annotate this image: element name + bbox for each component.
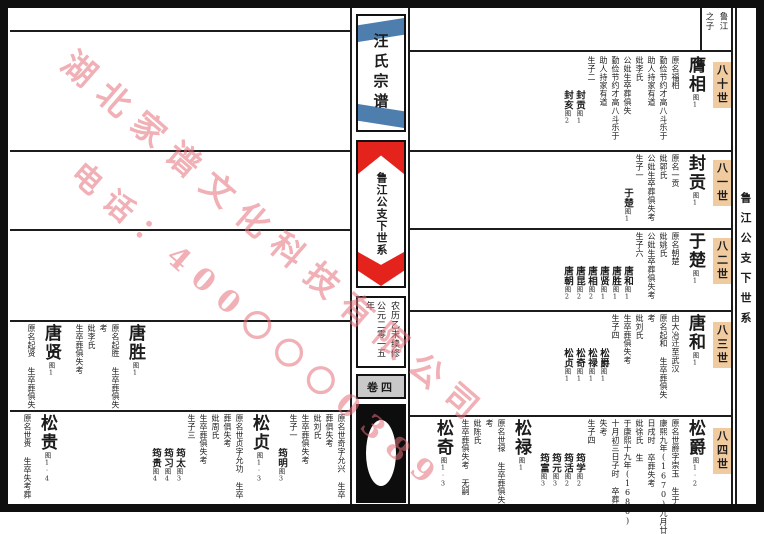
chart-ref: 图2	[563, 473, 571, 488]
red-chevron-icon	[358, 252, 404, 286]
generation-label: 八二世	[712, 238, 731, 288]
left-page-edge-line	[350, 8, 352, 504]
chart-ref: 图1	[623, 286, 631, 301]
spine-black-block	[356, 404, 406, 503]
chart-ref: 图1	[611, 286, 619, 301]
detail-column: 妣刘氏	[633, 314, 645, 339]
chart-ref: 图1	[623, 208, 631, 223]
detail-column: 葬俱失考	[221, 414, 233, 448]
detail-column: 原名世奇字允兴 生卒	[335, 414, 347, 499]
chart-ref: 图1	[47, 362, 55, 377]
chart-ref: 图2	[575, 286, 583, 301]
child-name: 筠贵图4	[149, 414, 161, 482]
detail-column: 考	[483, 419, 495, 427]
generation-row-2: 于楚图1原名朝楚妣姚氏公妣生卒葬俱失考生子六唐和图1唐胜图1唐贤图1唐相图2唐昆…	[410, 232, 709, 307]
child-name: 唐朝图2	[561, 232, 573, 300]
detail-column: 考	[645, 314, 657, 322]
detail-column: 生卒葬俱失考	[299, 414, 311, 464]
chart-ref: 图1	[691, 270, 699, 285]
chart-ref: 图1	[599, 286, 607, 301]
ancestor-header-right: 鲁江	[717, 12, 729, 48]
detail-column: 公妣生卒葬俱失考	[645, 232, 657, 299]
person-entry: 唐贤图1原名起贤 生卒葬俱失	[25, 324, 63, 409]
generation-row-3: 唐和图1由大冶迁至武汉原名起和 生卒葬俱失考妣刘氏生卒葬俱失考生子四松爵图1松禄…	[410, 314, 709, 412]
child-name: 松贞图1	[561, 314, 573, 382]
child-name: 筠学图2	[573, 419, 585, 487]
detail-column: 原名福相	[669, 56, 681, 90]
left-row-0: 唐胜图1原名起胜 生卒葬俱失考妣李氏生卒葬俱失考唐贤图1原名起贤 生卒葬俱失	[12, 324, 349, 407]
spine-oval-icon	[366, 420, 396, 486]
child-name: 筠元图3	[549, 419, 561, 487]
chart-ref: 图1	[599, 368, 607, 383]
chart-ref: 图1	[575, 110, 583, 125]
child-name: 唐胜图1	[609, 232, 621, 300]
chart-ref: 图1·2	[691, 457, 699, 488]
person-entry: 松奇图1·3	[429, 419, 455, 488]
person-name: 松贞图1·3	[247, 414, 271, 483]
detail-column: 原名一贡	[669, 154, 681, 188]
person-name: 松爵图1·2	[683, 419, 707, 488]
person-name: 膺相图1	[683, 56, 707, 109]
detail-column: 妣李氏	[85, 324, 97, 349]
detail-column: 生卒葬俱失考	[621, 314, 633, 364]
detail-column: 生子六	[633, 232, 645, 257]
generation-row-0: 膺相图1原名福相勤俭节约才高八斗乐于助人持家有道妣李氏公妣生卒葬俱失勤俭节约才高…	[410, 56, 709, 148]
branch-title: 鲁江公支下世系	[373, 172, 389, 256]
generation-label-text: 八一世	[713, 160, 731, 206]
chart-ref: 图1	[563, 368, 571, 383]
generation-label-text: 八三世	[713, 322, 731, 368]
chart-ref: 图1	[691, 192, 699, 207]
child-name: 唐和图1	[621, 232, 633, 300]
detail-column: 公妣生卒葬俱失考	[645, 154, 657, 221]
detail-column: 考	[97, 324, 109, 332]
child-name: 筠富图3	[537, 419, 549, 487]
volume-label: 卷四	[356, 374, 406, 399]
detail-column: 康熙九年(1670)九月廿	[657, 419, 669, 534]
person-name: 于楚图1	[683, 232, 707, 285]
chart-ref: 图2	[563, 286, 571, 301]
row-spacer	[147, 324, 347, 328]
chart-ref: 图3	[175, 468, 183, 483]
detail-column: 公妣生卒葬俱失	[621, 56, 633, 115]
detail-column: 生子一	[633, 154, 645, 179]
person-entry: 唐胜图1原名起胜 生卒葬俱失考妣李氏生卒葬俱失考	[73, 324, 147, 409]
detail-column: 原名起和 生卒葬俱失	[657, 314, 669, 399]
detail-column: 于康熙十九年(1680)	[621, 419, 633, 526]
chart-ref: 图1·3	[439, 457, 447, 488]
child-name: 筠明图3	[275, 414, 287, 482]
child-name: 于楚图1	[621, 154, 633, 222]
child-name: 封贡图1	[573, 56, 585, 124]
detail-column: 生卒葬俱失考 无嗣	[459, 419, 471, 496]
right-page-line	[408, 50, 733, 52]
chart-ref: 图3	[551, 473, 559, 488]
detail-column: 失考	[597, 419, 609, 436]
child-name: 唐贤图1	[597, 232, 609, 300]
generation-label: 八一世	[712, 160, 731, 210]
detail-column: 勤俭节约才高八斗乐于	[657, 56, 669, 140]
child-name: 筠太图3	[173, 414, 185, 482]
chart-ref: 图2	[587, 286, 595, 301]
person-name: 松奇图1·3	[431, 419, 455, 488]
generation-label-text: 八十世	[713, 62, 731, 108]
detail-column: 生子三	[185, 414, 197, 439]
chart-ref: 图1	[691, 94, 699, 109]
detail-column: 原名起贤 生卒葬俱失	[25, 324, 37, 409]
generation-label-text: 八二世	[713, 238, 731, 284]
detail-column: 生子四	[585, 419, 597, 444]
generation-label: 八十世	[712, 62, 731, 112]
child-name: 松爵图1	[597, 314, 609, 382]
red-ribbon-icon	[358, 142, 404, 174]
child-name: 唐相图2	[585, 232, 597, 300]
row-spacer	[59, 414, 145, 418]
person-entry: 松爵图1·2原名世爵字崇玉 生于康熙九年(1670)九月廿日戌时 卒葬失考妣徐氏…	[537, 419, 707, 534]
detail-column: 原名起胜 生卒葬俱失	[109, 324, 121, 409]
left-row-1: 原名世奇字允兴 生卒葬俱失考妣刘氏生卒葬俱失考生子一筠明图3松贞图1·3原名世贞…	[12, 414, 349, 500]
spine-title-block: 汪氏宗谱	[356, 14, 406, 132]
chart-ref: 图1	[575, 368, 583, 383]
person-name: 唐和图1	[683, 314, 707, 367]
detail-column: 妣周氏	[209, 414, 221, 439]
right-margin-title: 鲁江公支下世系	[737, 192, 753, 332]
detail-column: 勤俭节约才高八斗乐于	[609, 56, 621, 140]
chart-ref: 图3	[539, 473, 547, 488]
detail-column: 生卒葬俱失考	[197, 414, 209, 464]
edition-gregorian-date: 公元二零一五年	[363, 301, 385, 366]
chart-ref: 图2	[575, 473, 583, 488]
child-name: 封亥图2	[561, 56, 573, 124]
child-name: 筠活图2	[561, 419, 573, 487]
left-page-line	[10, 410, 351, 412]
generation-label: 八四世	[712, 428, 731, 478]
person-entry: 于楚图1原名朝楚妣姚氏公妣生卒葬俱失考生子六唐和图1唐胜图1唐贤图1唐相图2唐昆…	[561, 232, 707, 300]
detail-column: 日戌时 卒葬失考	[645, 419, 657, 487]
chart-ref: 图3	[277, 468, 285, 483]
detail-column: 妣姚氏	[657, 232, 669, 257]
detail-column: 妣郭氏	[657, 154, 669, 179]
person-entry: 松禄图1原名世禄 生卒葬俱失考妣陈氏生卒葬俱失考 无嗣	[459, 419, 533, 504]
detail-column: 助人持家有道	[597, 56, 609, 106]
detail-column: 妣刘氏	[311, 414, 323, 439]
left-page-line	[10, 150, 351, 152]
right-page-line	[408, 228, 733, 230]
person-entry: 原名世奇字允兴 生卒葬俱失考妣刘氏生卒葬俱失考生子一筠明图3	[275, 414, 347, 499]
chart-ref: 图1	[131, 362, 139, 377]
spine-branch-block: 鲁江公支下世系	[356, 140, 406, 288]
chart-ref: 图1	[691, 352, 699, 367]
row-spacer	[63, 324, 69, 328]
spine-edition-block: 农历乙未续修 公元二零一五年	[356, 296, 406, 368]
child-name: 松禄图1	[585, 314, 597, 382]
left-page-line	[10, 320, 351, 322]
detail-column: 原名世禄 生卒葬俱失	[495, 419, 507, 504]
detail-column: 妣李氏	[633, 56, 645, 81]
generation-row-4: 松爵图1·2原名世爵字崇玉 生于康熙九年(1670)九月廿日戌时 卒葬失考妣徐氏…	[410, 419, 709, 500]
ancestor-header-left: 之子	[703, 12, 715, 48]
person-name: 唐贤图1	[39, 324, 63, 377]
detail-column: 妣徐氏 生	[633, 419, 645, 462]
child-name: 唐昆图2	[573, 232, 585, 300]
edition-lunar-date: 农历乙未续修	[388, 301, 399, 366]
detail-column: 原名朝楚	[669, 232, 681, 266]
person-name: 松贵图1·4	[35, 414, 59, 483]
generation-label-text: 八四世	[713, 428, 731, 474]
chart-ref: 图1	[517, 457, 525, 472]
person-entry: 唐和图1由大冶迁至武汉原名起和 生卒葬俱失考妣刘氏生卒葬俱失考生子四松爵图1松禄…	[561, 314, 707, 399]
detail-column: 由大冶迁至武汉	[669, 314, 681, 373]
detail-column: 助人持家有道	[645, 56, 657, 106]
person-name: 唐胜图1	[123, 324, 147, 377]
detail-column: 原名世爵字崇玉 生于	[669, 419, 681, 504]
person-entry: 封贡图1原名一贡妣郭氏公妣生卒葬俱失考生子一于楚图1	[621, 154, 707, 222]
person-name: 封贡图1	[683, 154, 707, 207]
chart-ref: 图2	[563, 110, 571, 125]
detail-column: 葬俱失考	[323, 414, 335, 448]
person-entry: 松贵图1·4原名世贵 生卒失考葬	[21, 414, 59, 499]
detail-column: 生子一	[287, 414, 299, 439]
chart-ref: 图4	[163, 468, 171, 483]
detail-column: 原名世贞字允功 生卒	[233, 414, 245, 499]
detail-column: 生子四	[609, 314, 621, 339]
margin-double-line	[731, 8, 733, 504]
detail-column: 生卒葬俱失考	[73, 324, 85, 374]
generation-row-1: 封贡图1原名一贡妣郭氏公妣生卒葬俱失考生子一于楚图1	[410, 154, 709, 225]
detail-column: 妣陈氏	[471, 419, 483, 444]
person-entry: 膺相图1原名福相勤俭节约才高八斗乐于助人持家有道妣李氏公妣生卒葬俱失勤俭节约才高…	[561, 56, 707, 140]
right-page-line	[408, 310, 733, 312]
right-page-line	[408, 415, 733, 417]
detail-column: 十月初三日子时 卒葬	[609, 419, 621, 504]
detail-column: 生子二	[585, 56, 597, 81]
right-page-line	[408, 150, 733, 152]
ancestor-header: 鲁江 之子	[701, 12, 731, 48]
chart-ref: 图4	[151, 468, 159, 483]
chart-ref: 图1·3	[255, 452, 263, 483]
left-page-line	[10, 30, 351, 32]
child-name: 松奇图1	[573, 314, 585, 382]
chart-ref: 图1	[587, 368, 595, 383]
detail-column: 原名世贵 生卒失考葬	[21, 414, 33, 499]
child-name: 筠习图4	[161, 414, 173, 482]
person-entry: 松贞图1·3原名世贞字允功 生卒葬俱失考妣周氏生卒葬俱失考生子三筠太图3筠习图4…	[149, 414, 271, 499]
left-page-line	[10, 229, 351, 231]
genealogy-title: 汪氏宗谱	[371, 33, 392, 113]
chart-ref: 图1·4	[43, 452, 51, 483]
generation-label: 八三世	[712, 322, 731, 372]
person-name: 松禄图1	[509, 419, 533, 472]
